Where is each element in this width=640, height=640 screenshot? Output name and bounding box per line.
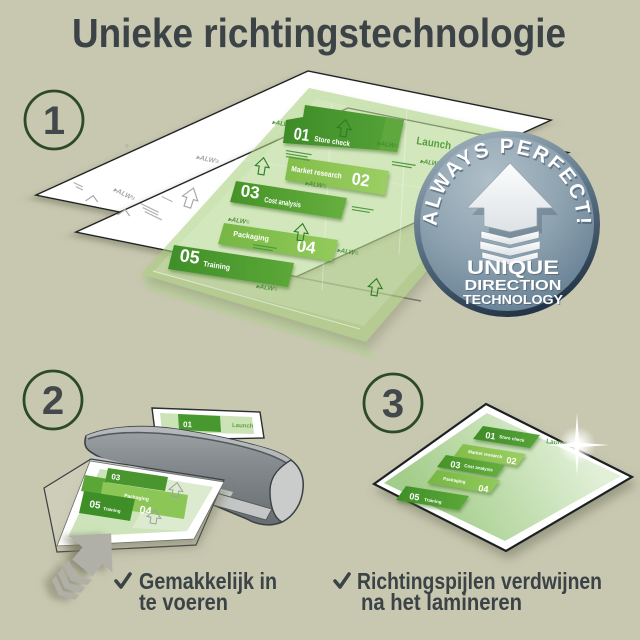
- svg-text:3: 3: [382, 382, 404, 426]
- svg-text:03: 03: [450, 459, 461, 470]
- svg-text:Unieke richtingstechnologie: Unieke richtingstechnologie: [72, 10, 566, 56]
- svg-text:01: 01: [183, 420, 193, 429]
- svg-text:1: 1: [43, 99, 65, 143]
- svg-text:TECHNOLOGY: TECHNOLOGY: [463, 293, 564, 307]
- svg-text:04: 04: [295, 236, 317, 258]
- svg-text:02: 02: [506, 455, 517, 466]
- svg-text:UNIQUE: UNIQUE: [467, 258, 559, 279]
- svg-text:na het lamineren: na het lamineren: [361, 589, 522, 615]
- svg-text:2: 2: [42, 379, 64, 423]
- svg-text:05: 05: [409, 491, 420, 502]
- svg-text:05: 05: [89, 499, 102, 512]
- svg-text:01: 01: [292, 124, 311, 145]
- svg-text:02: 02: [350, 169, 371, 190]
- svg-text:te voeren: te voeren: [139, 589, 228, 615]
- svg-text:03: 03: [239, 181, 261, 203]
- svg-text:04: 04: [478, 483, 489, 494]
- svg-text:DIRECTION: DIRECTION: [465, 278, 562, 294]
- svg-text:Launch: Launch: [232, 423, 254, 430]
- svg-text:01: 01: [485, 430, 496, 441]
- svg-text:05: 05: [178, 245, 201, 268]
